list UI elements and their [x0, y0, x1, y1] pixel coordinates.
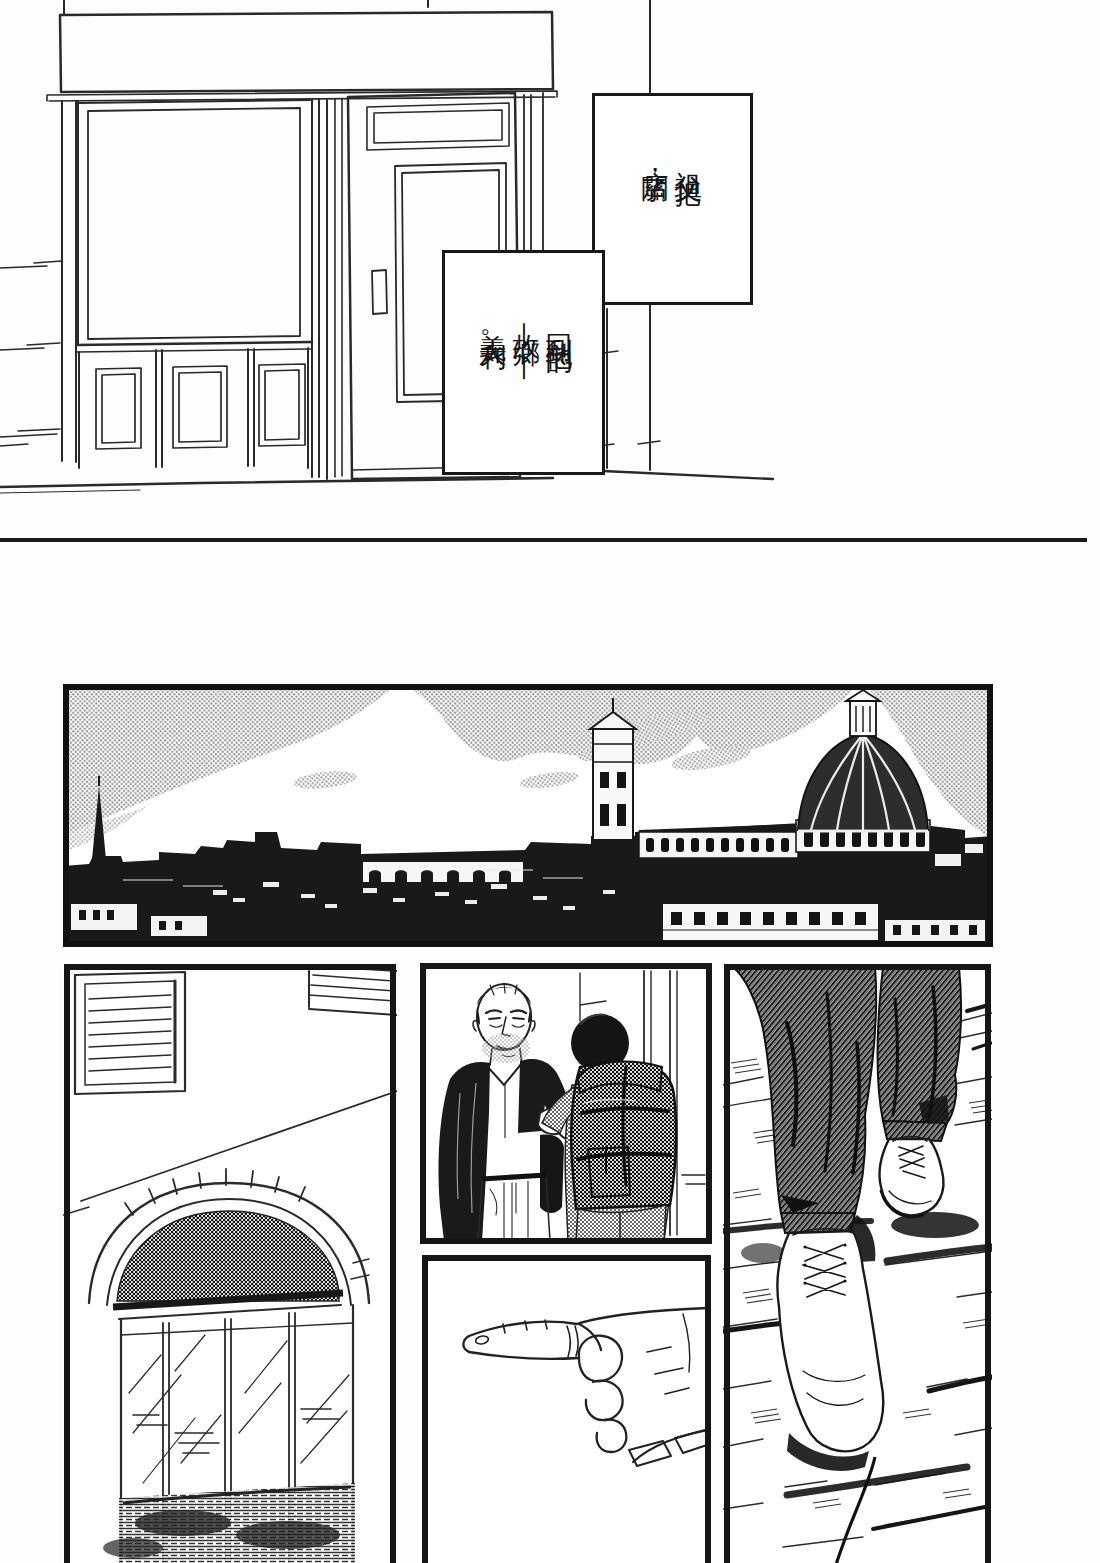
scene-divider-line — [0, 538, 1087, 542]
caption-return-text: 回到他的 故鄉—— 義大利。 — [477, 313, 576, 385]
panel-florence-skyline — [63, 684, 993, 947]
caption-box-return-to-italy: 回到他的 故鄉—— 義大利。 — [442, 250, 605, 475]
caption-column: 故鄉—— — [510, 313, 543, 385]
florence-skyline-drawing — [63, 684, 993, 947]
panel-pointing-hand — [421, 1254, 712, 1563]
manga-page: 祖父把 店關了， 回到他的 故鄉—— 義大利。 — [0, 0, 1100, 1563]
caption-grandfather-text: 祖父把 店關了， — [639, 150, 705, 195]
panel-walking-feet — [723, 963, 992, 1563]
walking-feet-drawing — [723, 963, 992, 1563]
caption-column: 回到他的 — [543, 313, 576, 385]
doorway-drawing — [63, 963, 397, 1563]
panel-storefront: 祖父把 店關了， 回到他的 故鄉—— 義大利。 — [0, 0, 790, 500]
panel-meeting — [420, 963, 712, 1244]
panel-arched-doorway — [63, 963, 397, 1563]
caption-column: 義大利。 — [477, 313, 510, 385]
pointing-hand-drawing — [421, 1254, 712, 1563]
caption-column: 祖父把 — [672, 150, 705, 195]
caption-column: 店關了， — [639, 150, 672, 195]
meeting-drawing — [420, 963, 712, 1244]
caption-box-grandfather: 祖父把 店關了， — [592, 93, 753, 305]
